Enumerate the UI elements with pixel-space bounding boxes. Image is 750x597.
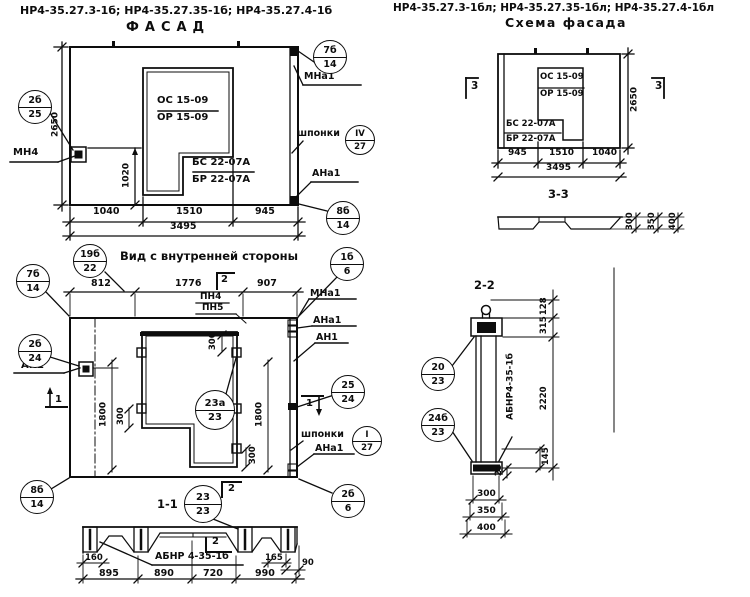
schema-section-3-right: 3 — [655, 81, 662, 92]
facade-sill-mark-top: БС 22-07А — [192, 158, 250, 168]
callout-bottom: 6 — [332, 502, 364, 518]
inner-callout-1b-6: 1б 6 — [330, 247, 364, 281]
section-3-3-dim-300: 300 — [626, 207, 635, 235]
facade-callout-7b-14: 7б 14 — [313, 40, 347, 74]
callout-bottom: 14 — [17, 282, 49, 298]
facade-callout-2b-25: 2б 25 — [18, 90, 52, 124]
callout-top: 2б — [19, 335, 51, 352]
schema-sill-mark-top: БС 22-07А — [506, 120, 555, 129]
inner-section-2-top: 2 — [221, 275, 228, 285]
facade-dim-3495: 3495 — [170, 222, 196, 232]
inner-section-1-right: 1 — [306, 399, 313, 409]
inner-callout-2b-24: 2б 24 — [18, 334, 52, 368]
callout-top: 7б — [17, 265, 49, 282]
section-1-1-dim-990: 990 — [255, 569, 275, 579]
inner-callout-23a-23: 23а 23 — [195, 390, 235, 430]
callout-top: IV — [346, 126, 374, 141]
schema-dim-2650: 2650 — [631, 83, 640, 117]
section-2-2-dim-25: 25 — [495, 460, 504, 480]
section-2-2-label: АБНР4-35-1б — [507, 339, 516, 435]
callout-top: 8б — [21, 481, 53, 498]
inner-label-pn5: ПН5 — [202, 304, 223, 313]
drawing-sheet: НР4-35.27.3-1б; НР4-35.27.35-1б; НР4-35.… — [0, 0, 750, 597]
section-1-1-dim-895: 895 — [99, 569, 119, 579]
schema-window-mark-top: ОС 15-09 — [540, 73, 584, 82]
facade-label-mn4: МН4 — [13, 148, 38, 158]
inner-dim-907: 907 — [257, 279, 277, 289]
section-2-2-dim-2220: 2220 — [540, 381, 549, 415]
callout-top: 2б — [332, 485, 364, 502]
schema-sill-mark-bottom: БР 22-07А — [506, 135, 555, 144]
facade-dim-1020: 1020 — [123, 159, 132, 193]
schema-dim-3495: 3495 — [546, 164, 571, 173]
inner-dim-300-bottom: 300 — [249, 441, 258, 469]
section-1-1-dim-160: 160 — [85, 554, 103, 563]
section-1-1-callout-23-23: 23 23 — [184, 485, 222, 523]
callout-top: 2б — [19, 91, 51, 108]
facade-dim-1510: 1510 — [176, 207, 202, 217]
schema-title: Схема фасада — [505, 17, 627, 30]
section-2-2-dim-400: 400 — [477, 524, 496, 533]
codes-left: НР4-35.27.3-1б; НР4-35.27.35-1б; НР4-35.… — [20, 5, 332, 16]
callout-bottom: 23 — [422, 375, 454, 391]
callout-top: 7б — [314, 41, 346, 58]
section-3-3-dim-400: 400 — [669, 207, 678, 235]
callout-top: 1б — [331, 248, 363, 265]
inner-dim-300-left: 300 — [117, 402, 126, 430]
facade-dim-1040: 1040 — [93, 207, 119, 217]
callout-top: 20 — [422, 358, 454, 375]
inner-label-mna1: МНа1 — [310, 289, 340, 299]
callout-bottom: 24 — [19, 352, 51, 368]
callout-bottom: 27 — [353, 442, 381, 456]
section-1-1-dim-165: 165 — [265, 554, 283, 563]
facade-dim-2650: 2650 — [52, 108, 61, 142]
callout-bottom: 14 — [314, 58, 346, 74]
section-2-2-dim-350: 350 — [477, 507, 496, 516]
facade-label-ana1: АНа1 — [312, 169, 340, 179]
callout-bottom: 23 — [196, 411, 234, 430]
inner-label-ana1b: АНа1 — [315, 444, 343, 454]
callout-bottom: 25 — [19, 108, 51, 124]
inner-section-2-bottom: 2 — [212, 537, 219, 547]
inner-callout-2b-6: 2б 6 — [331, 484, 365, 518]
inner-dim-812: 812 — [91, 279, 111, 289]
schema-section-3-left: 3 — [471, 81, 478, 92]
facade-dim-945: 945 — [255, 207, 275, 217]
callout-top: 25 — [332, 376, 364, 393]
callout-top: 24б — [422, 409, 454, 426]
section-2-2-callout-24b-23: 24б 23 — [421, 408, 455, 442]
callout-bottom: 14 — [327, 219, 359, 235]
inner-dim-1800-left: 1800 — [100, 398, 109, 432]
inner-label-ana1: АНа1 — [313, 316, 341, 326]
callout-top: I — [353, 427, 381, 442]
inner-dim-1776: 1776 — [175, 279, 201, 289]
callout-bottom: 6 — [331, 265, 363, 281]
inner-callout-i-27: I 27 — [352, 426, 382, 456]
inner-dim-300-top: 300 — [209, 327, 218, 355]
callout-top: 23а — [196, 391, 234, 411]
schema-dim-945: 945 — [508, 149, 527, 158]
section-1-1-dim-90: 90 — [302, 559, 314, 568]
section-3-3-title: 3-3 — [548, 189, 569, 201]
inner-dim-1800-right: 1800 — [256, 398, 265, 432]
callout-top: 19б — [74, 245, 106, 262]
inner-callout-25-24: 25 24 — [331, 375, 365, 409]
codes-right: НР4-35.27.3-1бл; НР4-35.27.35-1бл; НР4-3… — [393, 3, 714, 14]
facade-window-mark-top: ОС 15-09 — [157, 96, 208, 106]
schema-window-mark-bottom: ОР 15-09 — [540, 90, 584, 99]
callout-top: 8б — [327, 202, 359, 219]
section-2-2-dim-315: 315 — [540, 308, 549, 342]
section-1-1-dim-890: 890 — [154, 569, 174, 579]
inner-section-1-left: 1 — [55, 395, 62, 405]
callout-bottom: 23 — [185, 505, 221, 523]
facade-window-mark-bottom: ОР 15-09 — [157, 113, 208, 123]
section-1-1-dim-720: 720 — [203, 569, 223, 579]
section-1-1-label: АБНР 4-35-1б — [155, 552, 229, 562]
facade-title: ФАСАД — [126, 21, 210, 34]
inner-callout-19b-22: 19б 22 — [73, 244, 107, 278]
inner-label-pn4: ПН4 — [200, 293, 221, 302]
inner-callout-8b-14: 8б 14 — [20, 480, 54, 514]
callout-bottom: 14 — [21, 498, 53, 514]
schema-dim-1040: 1040 — [592, 149, 617, 158]
facade-label-shponki: шпонки — [297, 129, 340, 139]
facade-callout-iv-27: IV 27 — [345, 125, 375, 155]
callout-bottom: 22 — [74, 262, 106, 278]
section-1-1-marker-2: 2 — [228, 484, 235, 494]
section-3-3-dim-350: 350 — [648, 207, 657, 235]
schema-dim-1510: 1510 — [549, 149, 574, 158]
section-2-2-callout-20-23: 20 23 — [421, 357, 455, 391]
section-2-2-dim-300: 300 — [477, 490, 496, 499]
inner-callout-7b-14: 7б 14 — [16, 264, 50, 298]
facade-callout-8b-14: 8б 14 — [326, 201, 360, 235]
inner-view-title: Вид с внутренней стороны — [120, 251, 298, 263]
callout-top: 23 — [185, 486, 221, 505]
callout-bottom: 27 — [346, 141, 374, 155]
inner-label-shponki: шпонки — [301, 430, 344, 440]
section-2-2-dim-145: 145 — [542, 439, 551, 473]
section-1-1-title: 1-1 — [157, 499, 178, 511]
callout-bottom: 23 — [422, 426, 454, 442]
inner-label-an1: АН1 — [316, 333, 338, 343]
callout-bottom: 24 — [332, 393, 364, 409]
facade-sill-mark-bottom: БР 22-07А — [192, 175, 250, 185]
section-2-2-title: 2-2 — [474, 280, 495, 292]
